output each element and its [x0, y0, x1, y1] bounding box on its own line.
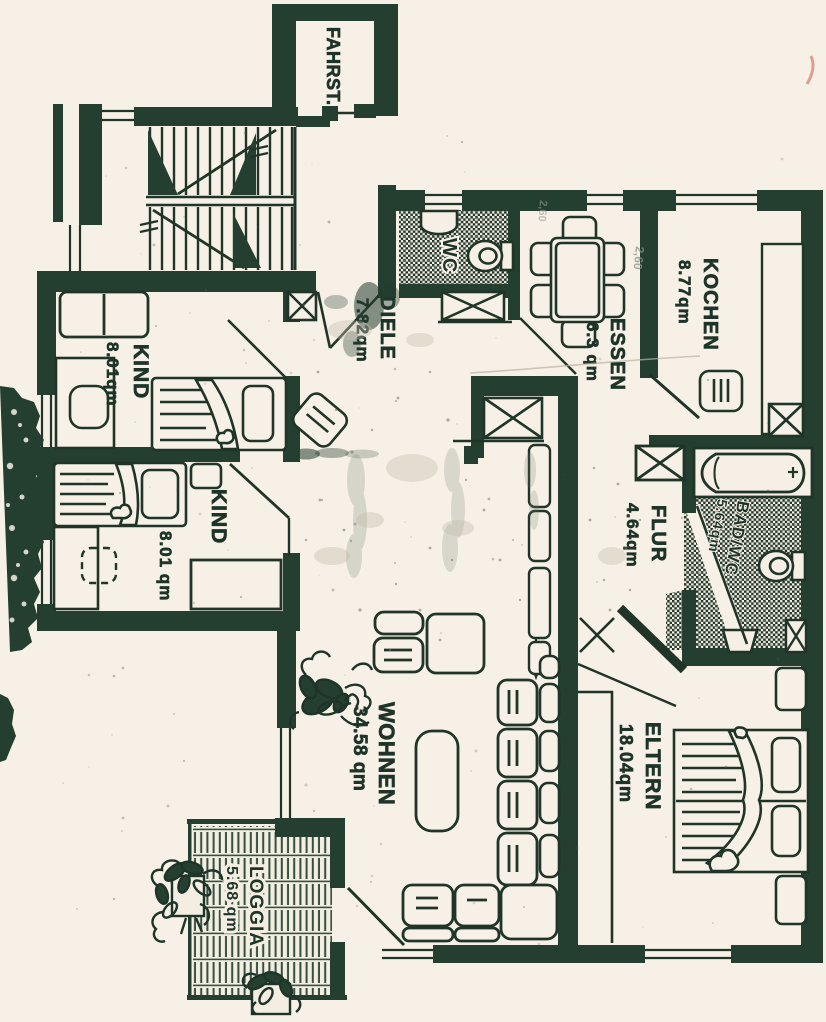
svg-text:8.01 qm: 8.01 qm: [156, 531, 175, 601]
svg-text:WC: WC: [438, 238, 460, 273]
svg-text:2,60: 2,60: [536, 200, 549, 222]
svg-text:FAHRST.: FAHRST.: [323, 27, 343, 106]
svg-text:2,60: 2,60: [631, 246, 647, 271]
svg-text:KIND: KIND: [207, 489, 230, 544]
